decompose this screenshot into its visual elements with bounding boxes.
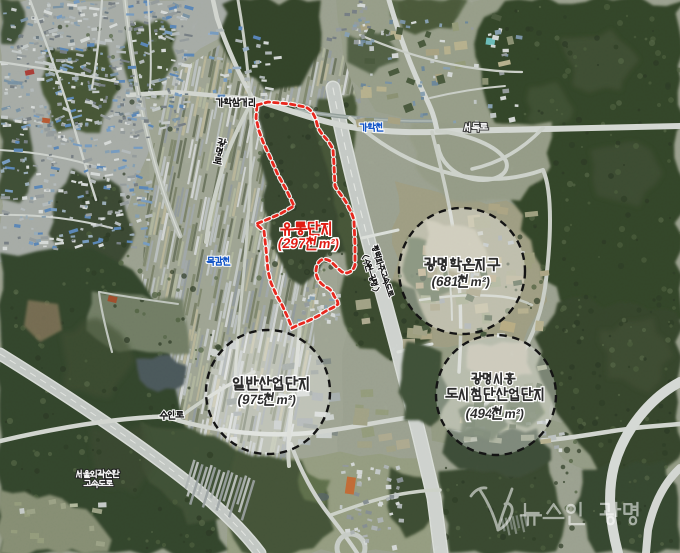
svg-text:(494: (494	[465, 406, 495, 421]
svg-text:m²): m²)	[470, 275, 492, 289]
svg-text:m²): m²)	[318, 236, 341, 251]
svg-text:(297: (297	[277, 235, 308, 251]
svg-text:m²): m²)	[504, 407, 526, 421]
svg-text:(681: (681	[431, 274, 461, 289]
svg-text:m²): m²)	[276, 393, 298, 407]
svg-text:(975: (975	[237, 392, 267, 407]
